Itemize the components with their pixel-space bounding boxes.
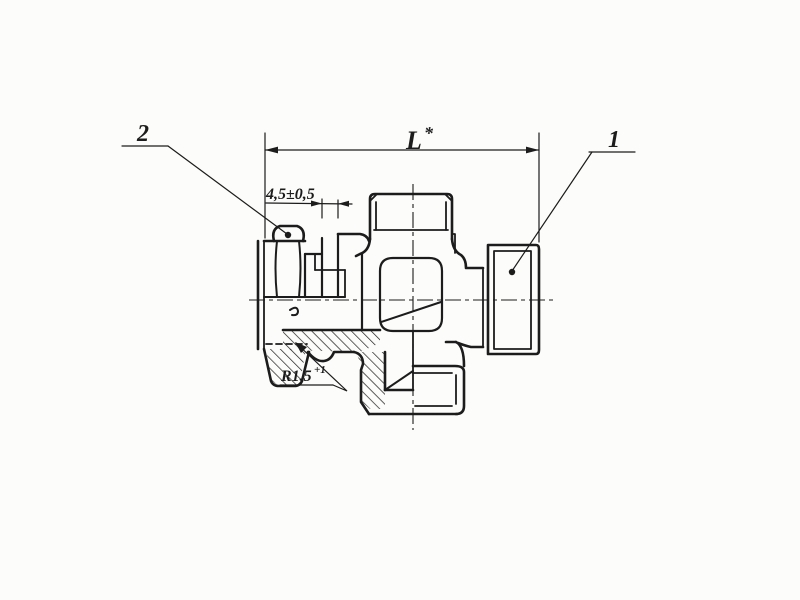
top-boss-outline bbox=[370, 194, 452, 239]
callout-1-dot bbox=[509, 269, 515, 275]
dim-arrow-right bbox=[526, 147, 539, 154]
gap-extension-ticks bbox=[322, 199, 338, 218]
technical-drawing-canvas: L * 2 1 4,5±0,5 R1,5 +1 bbox=[0, 0, 800, 600]
nut-facet-right bbox=[299, 241, 301, 297]
outer-surface-groove bbox=[308, 352, 354, 361]
gap-dimension-label: 4,5±0,5 bbox=[265, 186, 315, 203]
boss-right-fillet bbox=[452, 239, 483, 268]
hatch-left-port-wall bbox=[283, 330, 380, 352]
radius-dimension-label: R1,5 bbox=[280, 368, 312, 385]
length-dimension-label: L bbox=[405, 126, 422, 155]
callout-1-label: 1 bbox=[608, 127, 620, 153]
callout-2-label: 2 bbox=[136, 121, 149, 147]
callout-1-leader bbox=[512, 152, 592, 271]
half-section-diagonal bbox=[381, 302, 441, 322]
callout-2-dot bbox=[285, 232, 291, 238]
tube-top-edge bbox=[338, 234, 369, 241]
radius-dimension-tolerance: +1 bbox=[314, 364, 326, 376]
gap-arrow-right bbox=[338, 201, 349, 207]
dim-arrow-left bbox=[265, 147, 278, 154]
nut-facet-left bbox=[276, 241, 278, 297]
annotation-text: L * 2 1 4,5±0,5 R1,5 +1 bbox=[136, 121, 620, 385]
length-dimension-asterisk: * bbox=[424, 123, 434, 143]
surface-mark bbox=[290, 308, 298, 315]
bottom-bore-seat-chamfer bbox=[385, 371, 413, 390]
boss-inner-verticals bbox=[376, 202, 446, 230]
drawing-sheet: L * 2 1 4,5±0,5 R1,5 +1 bbox=[0, 0, 800, 600]
